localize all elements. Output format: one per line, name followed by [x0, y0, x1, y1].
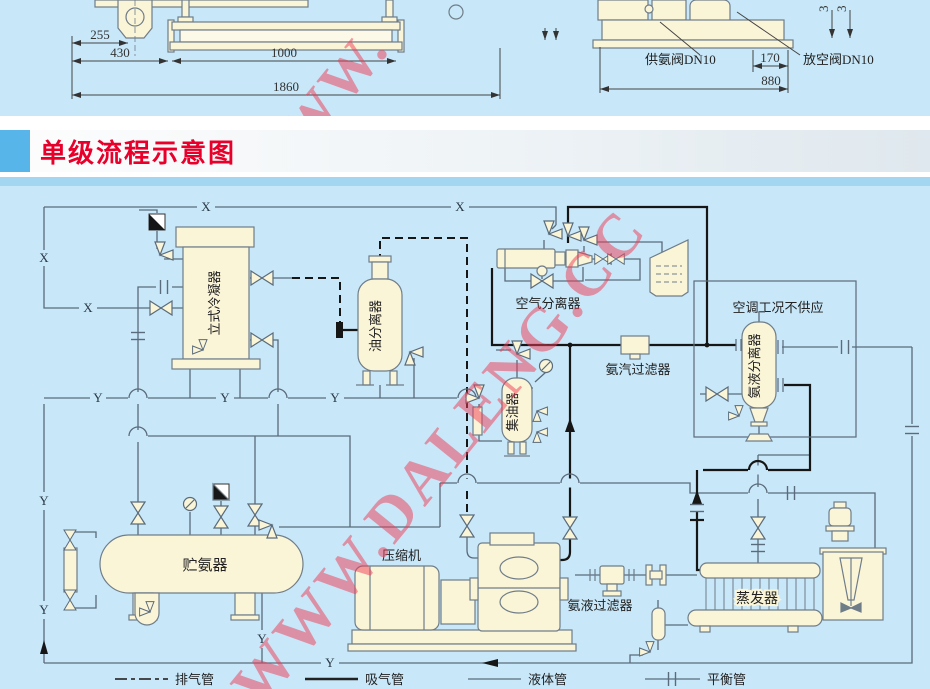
union-icon	[690, 505, 704, 512]
dim-880: 880	[761, 73, 781, 88]
legend-label-discharge: 排气管	[175, 672, 214, 687]
agitator-motor	[829, 508, 851, 526]
partial-dim-1: 3	[816, 6, 831, 13]
marker-y: Y	[330, 390, 340, 405]
vapor-filter-label: 氨汽过滤器	[605, 362, 670, 377]
solenoid-icon	[213, 484, 229, 500]
legend-label-balance: 平衡管	[707, 672, 746, 687]
marker-y: Y	[325, 655, 335, 670]
liquid-separator-label: 氨液分离器	[747, 333, 762, 398]
vapor-filter	[621, 336, 649, 359]
receiver-vessel	[100, 484, 303, 625]
blue-divider-strip	[0, 177, 930, 186]
solenoid-icon	[149, 214, 165, 230]
white-gap	[0, 116, 930, 130]
liquid-filter-label: 氨液过滤器	[567, 598, 632, 613]
marker-x: X	[455, 199, 465, 214]
top-drawings-svg: 255 430 1000 1860	[0, 0, 930, 116]
gauge-valve-icon	[64, 530, 76, 550]
partial-dim-2: 3	[834, 6, 849, 13]
dim-170: 170	[760, 50, 780, 65]
sep-drain-valve-icon	[729, 406, 743, 420]
agitator-tank	[820, 502, 886, 620]
angle-valve-icon	[155, 242, 173, 260]
flow-diagram-svg: 空调工况不供应 立式冷凝器 油分离器	[0, 186, 930, 689]
hook-icon	[449, 5, 463, 19]
page: 255 430 1000 1860	[0, 0, 930, 689]
oil-sep-valve-icon	[405, 347, 423, 365]
suction-valve-icon	[563, 517, 577, 539]
label-vent-valve: 放空阀DN10	[803, 52, 874, 67]
page-title: 单级流程示意图	[40, 133, 236, 170]
expansion-valve-icon	[751, 517, 765, 539]
filter-valve-icon	[640, 642, 654, 656]
dim-255: 255	[90, 27, 110, 42]
collector-valve-icon	[533, 428, 547, 442]
oil-drain-tee	[336, 322, 343, 338]
note-box-label: 空调工况不供应	[732, 300, 823, 315]
union-icon	[161, 280, 168, 294]
valve-icon	[150, 301, 172, 315]
marker-y: Y	[39, 602, 49, 617]
gauge-valve-icon	[64, 590, 76, 610]
sep-valve-icon	[706, 387, 728, 401]
marker-x: X	[83, 300, 93, 315]
unit-drawing	[593, 0, 793, 48]
marker-y: Y	[39, 493, 49, 508]
top-engineering-drawings: 255 430 1000 1860	[0, 0, 930, 116]
legend-label-liquid: 液体管	[528, 672, 567, 687]
label-supply-valve: 供氨阀DN10	[645, 52, 716, 67]
pipe-legend: 排气管 吸气管 液体管 平衡管	[115, 672, 746, 687]
marker-x: X	[201, 199, 211, 214]
oil-separator-vessel	[356, 256, 423, 385]
compressor-block	[478, 543, 560, 631]
legend-label-suction: 吸气管	[365, 672, 404, 687]
level-gauge	[64, 530, 77, 610]
receiver-valve-icon	[131, 502, 145, 524]
title-accent-square	[0, 130, 30, 172]
receiver-valve-icon	[214, 506, 228, 528]
flow-diagram: 空调工况不供应 立式冷凝器 油分离器	[0, 186, 930, 689]
liquid-separator-vessel	[706, 312, 783, 441]
condenser-valve-icon	[251, 333, 273, 347]
section-title-bar: 单级流程示意图	[0, 130, 930, 172]
small-vessel	[652, 608, 665, 640]
pressure-gauge-icon	[184, 498, 197, 511]
dim-1000: 1000	[271, 45, 297, 60]
evaporator-label: 蒸发器	[736, 591, 778, 607]
pipe-junction-dot	[705, 343, 710, 348]
marker-y: Y	[220, 390, 230, 405]
receiver-sump	[135, 593, 159, 625]
union-icon	[905, 427, 919, 434]
marker-x: X	[39, 250, 49, 265]
receiver-label: 贮氨器	[182, 557, 227, 574]
condenser-label: 立式冷凝器	[207, 270, 222, 335]
dim-430: 430	[110, 45, 130, 60]
water-tank	[650, 240, 688, 296]
condenser-valve-icon	[251, 271, 273, 285]
oil-separator-label: 油分离器	[368, 300, 383, 352]
marker-y: Y	[93, 390, 103, 405]
air-sep-valve-icon	[544, 221, 562, 239]
discharge-valve-icon	[460, 515, 474, 537]
collector-valve-icon	[533, 407, 547, 421]
